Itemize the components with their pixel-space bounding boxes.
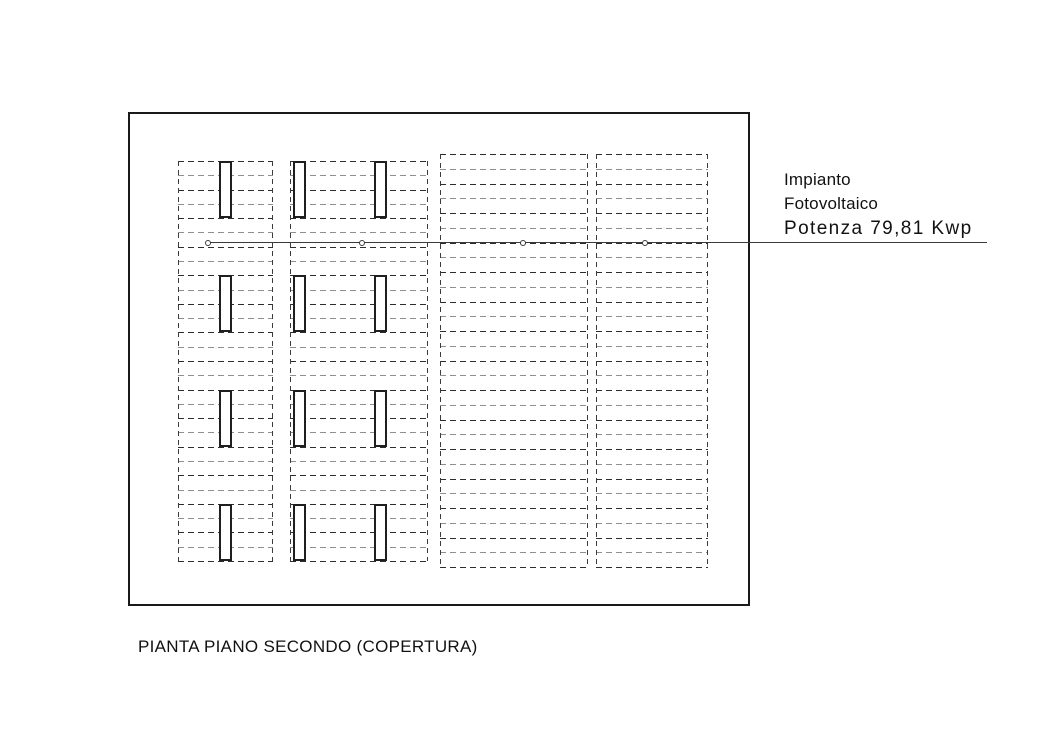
panel-row-line	[290, 290, 428, 291]
panel-row-line	[290, 418, 428, 419]
panel-array-edge-line	[272, 161, 273, 561]
panel-row-line	[440, 405, 588, 406]
roof-structure-rect	[219, 390, 232, 447]
panel-row-line	[290, 390, 428, 391]
panel-row-line	[596, 390, 708, 391]
panel-row-line	[290, 532, 428, 533]
panel-row-line	[178, 561, 273, 562]
panel-row-line	[290, 561, 428, 562]
panel-row-line	[290, 504, 428, 505]
panel-row-line	[596, 302, 708, 303]
panel-row-line	[596, 184, 708, 185]
panel-row-line	[178, 490, 273, 491]
panel-array-edge-line	[427, 161, 428, 561]
panel-row-line	[290, 318, 428, 319]
panel-row-line	[596, 154, 708, 155]
panel-row-line	[440, 552, 588, 553]
panel-row-line	[290, 204, 428, 205]
panel-row-line	[440, 287, 588, 288]
pv-panel-array	[440, 154, 588, 567]
roof-structure-rect	[293, 161, 306, 218]
panel-row-line	[178, 232, 273, 233]
panel-row-line	[290, 161, 428, 162]
panel-row-line	[290, 218, 428, 219]
panel-row-line	[440, 434, 588, 435]
roof-structure-rect	[293, 504, 306, 561]
panel-row-line	[440, 346, 588, 347]
panel-row-line	[596, 567, 708, 568]
panel-row-line	[596, 169, 708, 170]
drawing-caption: PIANTA PIANO SECONDO (COPERTURA)	[138, 637, 478, 657]
panel-row-line	[440, 302, 588, 303]
panel-row-line	[596, 420, 708, 421]
panel-row-line	[440, 464, 588, 465]
roof-structure-rect	[219, 161, 232, 218]
roof-structure-rect	[374, 275, 387, 332]
roof-structure-rect	[293, 275, 306, 332]
panel-row-line	[440, 272, 588, 273]
panel-row-line	[596, 523, 708, 524]
panel-row-line	[596, 538, 708, 539]
panel-row-line	[290, 175, 428, 176]
panel-row-line	[440, 243, 588, 244]
panel-row-line	[440, 316, 588, 317]
panel-row-line	[290, 490, 428, 491]
panel-row-line	[440, 449, 588, 450]
panel-row-line	[178, 361, 273, 362]
panel-row-line	[440, 169, 588, 170]
panel-row-line	[290, 275, 428, 276]
panel-row-line	[440, 493, 588, 494]
panel-row-line	[440, 390, 588, 391]
panel-row-line	[440, 375, 588, 376]
panel-row-line	[178, 332, 273, 333]
panel-row-line	[178, 218, 273, 219]
panel-row-line	[440, 257, 588, 258]
panel-array-edge-line	[440, 154, 441, 567]
pv-panel-array	[178, 161, 273, 561]
leader-node-circle	[359, 240, 365, 246]
roof-structure-rect	[219, 504, 232, 561]
panel-row-line	[178, 347, 273, 348]
panel-row-line	[290, 190, 428, 191]
panel-row-line	[596, 361, 708, 362]
panel-row-line	[440, 479, 588, 480]
panel-row-line	[596, 479, 708, 480]
panel-row-line	[290, 547, 428, 548]
panel-row-line	[440, 523, 588, 524]
panel-row-line	[596, 331, 708, 332]
panel-array-edge-line	[596, 154, 597, 567]
panel-row-line	[440, 213, 588, 214]
pv-panel-array	[596, 154, 708, 567]
pv-label-line-3: Potenza 79,81 Kwp	[784, 216, 973, 241]
panel-row-line	[440, 508, 588, 509]
panel-array-edge-line	[587, 154, 588, 567]
roof-structure-rect	[293, 390, 306, 447]
panel-row-line	[596, 257, 708, 258]
panel-row-line	[596, 493, 708, 494]
panel-row-line	[596, 316, 708, 317]
panel-row-line	[596, 375, 708, 376]
drawing-sheet: Impianto Fotovoltaico Potenza 79,81 Kwp …	[0, 0, 1046, 744]
leader-line	[208, 242, 987, 243]
panel-row-line	[596, 243, 708, 244]
leader-node-circle	[642, 240, 648, 246]
panel-row-line	[178, 461, 273, 462]
panel-row-line	[290, 447, 428, 448]
roof-structure-rect	[374, 504, 387, 561]
panel-row-line	[596, 198, 708, 199]
leader-node-circle	[520, 240, 526, 246]
panel-row-line	[178, 261, 273, 262]
panel-row-line	[596, 287, 708, 288]
pv-system-label: Impianto Fotovoltaico Potenza 79,81 Kwp	[784, 168, 973, 241]
panel-row-line	[596, 552, 708, 553]
panel-row-line	[440, 198, 588, 199]
panel-array-edge-line	[707, 154, 708, 567]
panel-row-line	[440, 154, 588, 155]
panel-row-line	[290, 404, 428, 405]
panel-row-line	[596, 272, 708, 273]
panel-row-line	[290, 475, 428, 476]
panel-row-line	[596, 213, 708, 214]
panel-row-line	[290, 347, 428, 348]
panel-row-line	[596, 449, 708, 450]
leader-node-circle	[205, 240, 211, 246]
panel-row-line	[596, 464, 708, 465]
panel-row-line	[290, 461, 428, 462]
panel-row-line	[440, 567, 588, 568]
panel-row-line	[290, 261, 428, 262]
panel-row-line	[596, 228, 708, 229]
panel-row-line	[178, 475, 273, 476]
panel-row-line	[290, 232, 428, 233]
panel-row-line	[290, 361, 428, 362]
panel-row-line	[290, 247, 428, 248]
panel-row-line	[440, 361, 588, 362]
roof-structure-rect	[374, 161, 387, 218]
panel-row-line	[596, 346, 708, 347]
panel-row-line	[440, 331, 588, 332]
roof-structure-rect	[374, 390, 387, 447]
panel-row-line	[178, 375, 273, 376]
panel-row-line	[440, 538, 588, 539]
panel-row-line	[178, 247, 273, 248]
panel-row-line	[290, 375, 428, 376]
panel-row-line	[440, 228, 588, 229]
panel-row-line	[290, 432, 428, 433]
panel-row-line	[596, 434, 708, 435]
pv-label-line-2: Fotovoltaico	[784, 192, 973, 216]
panel-row-line	[440, 184, 588, 185]
roof-plan	[0, 0, 1046, 744]
panel-row-line	[178, 447, 273, 448]
panel-array-edge-line	[178, 161, 179, 561]
panel-row-line	[596, 405, 708, 406]
panel-row-line	[596, 508, 708, 509]
pv-panel-array	[290, 161, 428, 561]
panel-array-edge-line	[290, 161, 291, 561]
pv-label-line-1: Impianto	[784, 168, 973, 192]
panel-row-line	[290, 304, 428, 305]
panel-row-line	[290, 518, 428, 519]
panel-row-line	[440, 420, 588, 421]
panel-row-line	[290, 332, 428, 333]
roof-structure-rect	[219, 275, 232, 332]
